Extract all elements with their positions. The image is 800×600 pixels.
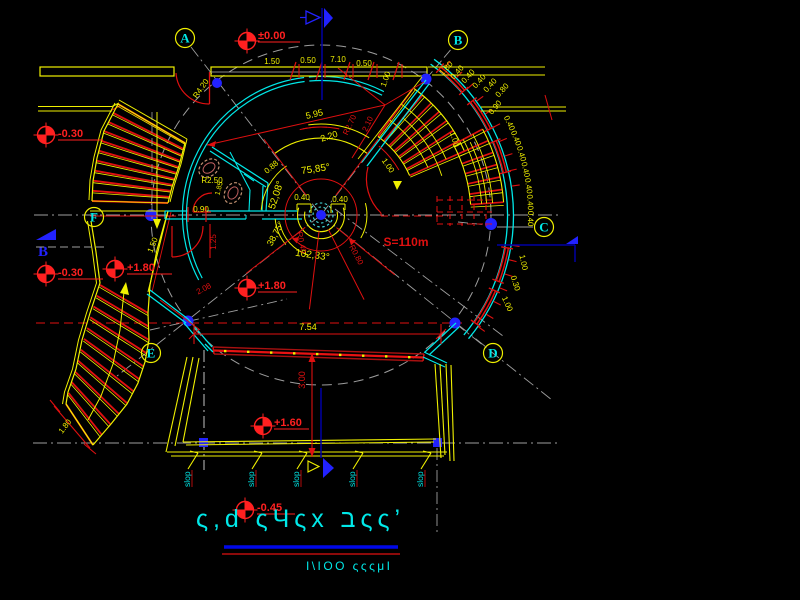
svg-text:0.40: 0.40 [294, 193, 310, 202]
svg-text:7.54: 7.54 [299, 322, 317, 332]
svg-text:+1.80: +1.80 [127, 262, 155, 274]
svg-text:Ι\ΙΟΟ ςςςμΙ: Ι\ΙΟΟ ςςςμΙ [306, 559, 390, 573]
svg-text:+1.60: +1.60 [274, 417, 302, 429]
svg-text:0.40: 0.40 [332, 195, 348, 204]
svg-text:0.50: 0.50 [356, 59, 372, 68]
svg-text:0.50: 0.50 [300, 56, 316, 65]
svg-text:slop: slop [182, 471, 192, 487]
svg-text:0.40: 0.40 [526, 211, 535, 227]
svg-text:1.25: 1.25 [209, 234, 218, 250]
svg-text:F: F [90, 210, 98, 225]
svg-text:+1.80: +1.80 [258, 280, 286, 292]
svg-text:3.00: 3.00 [297, 371, 307, 389]
svg-text:S=110m: S=110m [383, 235, 428, 249]
svg-text:B: B [454, 33, 463, 48]
svg-text:D: D [488, 346, 497, 361]
svg-text:slop: slop [246, 471, 256, 487]
svg-text:0.40: 0.40 [525, 194, 535, 211]
svg-text:±0.00: ±0.00 [258, 30, 285, 42]
svg-text:slop: slop [291, 471, 301, 487]
svg-text:-0.30: -0.30 [58, 267, 83, 279]
svg-text:-0.30: -0.30 [58, 128, 83, 140]
svg-text:slop: slop [415, 471, 425, 487]
svg-text:slop: slop [347, 471, 357, 487]
svg-text:1.50: 1.50 [264, 57, 280, 66]
svg-text:A: A [180, 31, 190, 46]
svg-text:7.10: 7.10 [330, 55, 346, 64]
svg-text:E: E [147, 346, 156, 361]
svg-text:B: B [38, 244, 48, 260]
svg-text:C: C [539, 220, 548, 235]
svg-text:0.90: 0.90 [193, 205, 209, 214]
svg-text:ς,d ςЧςx בςς’: ς,d ςЧςx בςς’ [196, 505, 400, 533]
